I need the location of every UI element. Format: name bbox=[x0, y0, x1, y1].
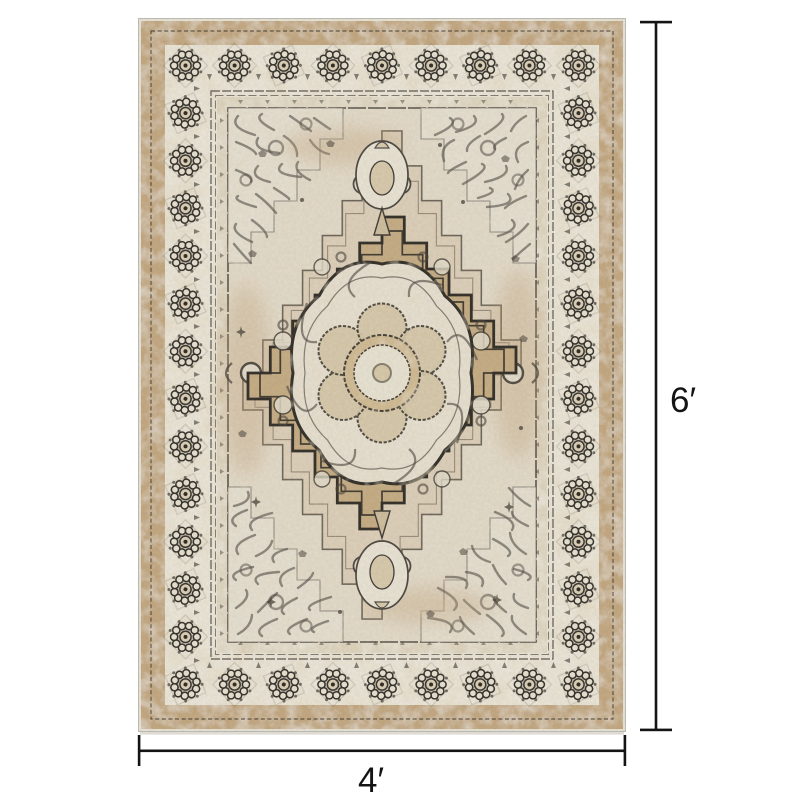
svg-text:4′: 4′ bbox=[358, 761, 384, 800]
svg-text:6′: 6′ bbox=[670, 381, 696, 420]
